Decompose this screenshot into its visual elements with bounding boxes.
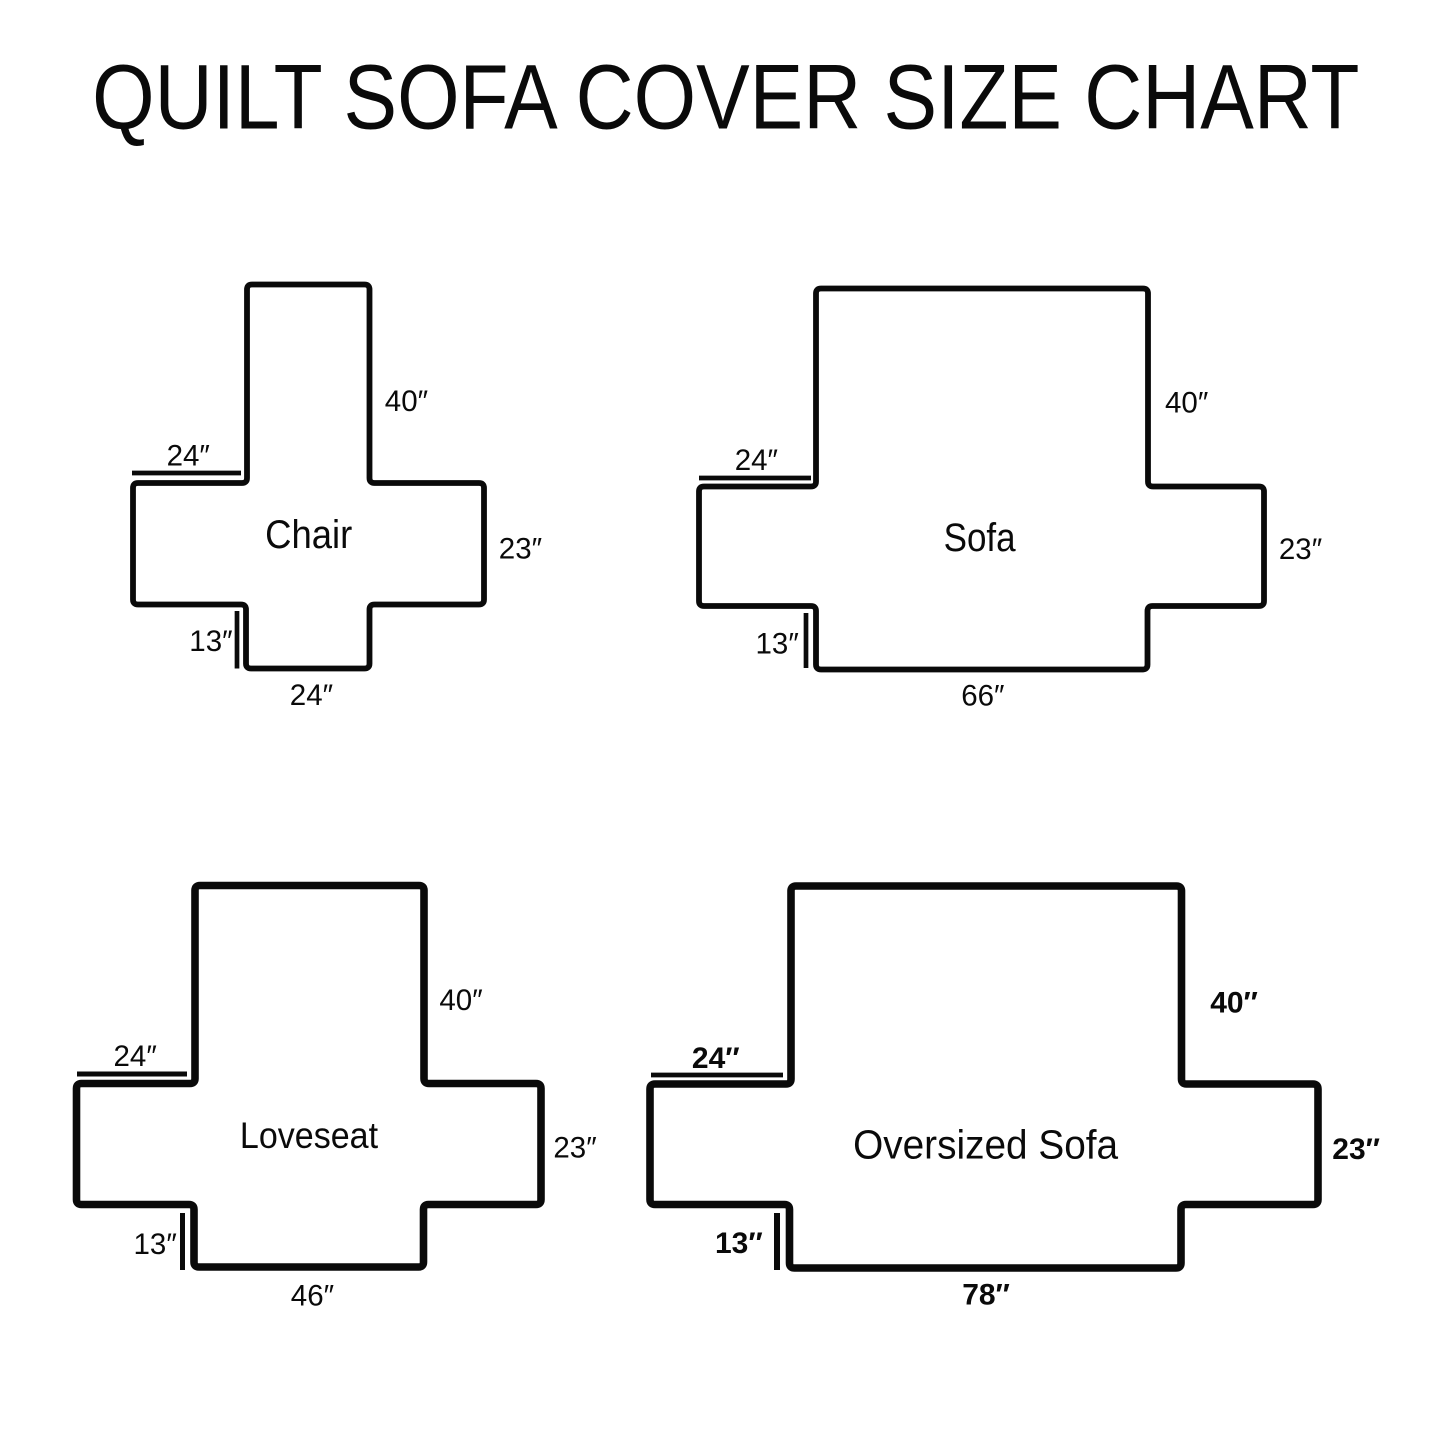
svg-text:78″: 78″ [962,1279,1010,1312]
svg-text:66″: 66″ [961,680,1004,713]
svg-text:24″: 24″ [290,679,333,712]
svg-text:46″: 46″ [291,1279,334,1312]
svg-text:24″: 24″ [735,444,778,477]
svg-text:40″: 40″ [439,984,482,1017]
svg-text:13″: 13″ [715,1227,763,1260]
svg-text:13″: 13″ [189,625,232,658]
svg-text:23″: 23″ [1279,533,1322,566]
svg-text:Loveseat: Loveseat [240,1115,378,1157]
svg-text:23″: 23″ [1332,1133,1380,1166]
svg-text:24″: 24″ [114,1040,157,1073]
svg-text:QUILT SOFA COVER SIZE CHART: QUILT SOFA COVER SIZE CHART [92,46,1359,148]
svg-text:40″: 40″ [1165,387,1208,420]
svg-text:Oversized Sofa: Oversized Sofa [853,1122,1119,1167]
svg-text:23″: 23″ [499,532,542,565]
svg-text:13″: 13″ [756,628,799,661]
svg-text:23″: 23″ [553,1131,596,1164]
svg-text:13″: 13″ [134,1228,177,1261]
svg-text:Chair: Chair [265,513,352,558]
svg-text:24″: 24″ [692,1042,740,1075]
svg-text:24″: 24″ [167,440,210,473]
svg-text:Sofa: Sofa [944,515,1016,559]
svg-text:40″: 40″ [385,385,428,418]
svg-text:40″: 40″ [1210,987,1258,1020]
